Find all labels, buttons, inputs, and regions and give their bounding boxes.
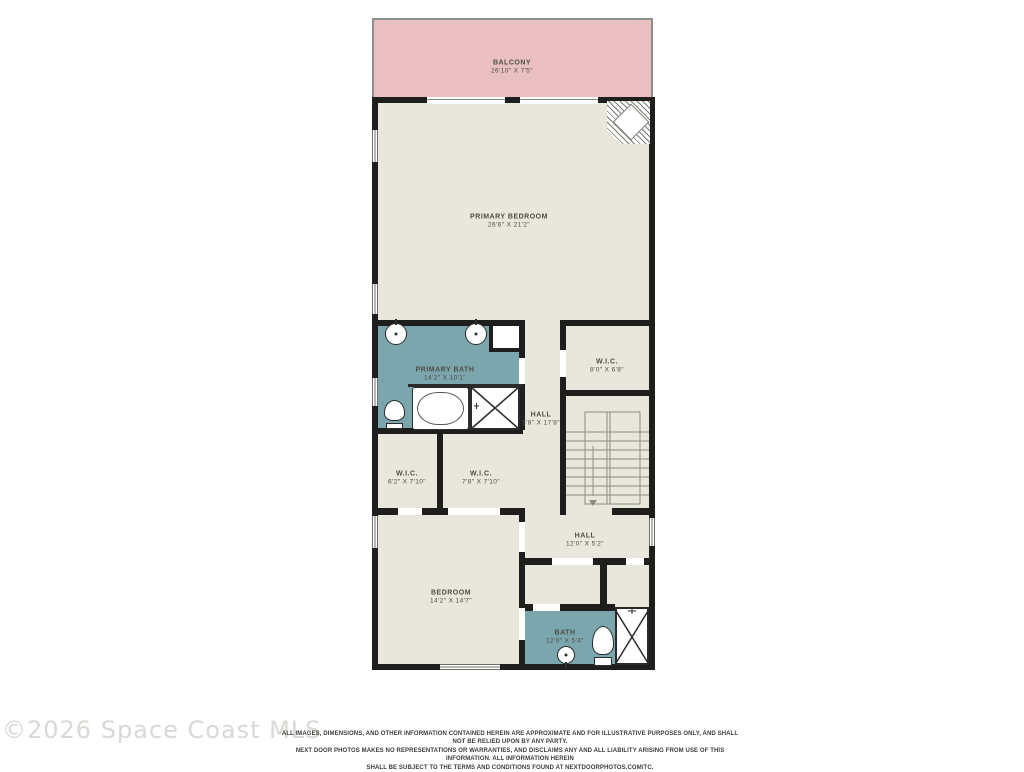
room-name: HALL bbox=[566, 533, 604, 540]
room-dimensions: 3'8" X 17'8" bbox=[522, 420, 560, 427]
disclaimer-line: NEXT DOOR PHOTOS MAKES NO REPRESENTATION… bbox=[280, 747, 740, 764]
toilet-tank bbox=[594, 657, 612, 666]
room-label-primary-bath: PRIMARY BATH 14'2" X 10'1" bbox=[416, 367, 475, 382]
toilet-tank bbox=[386, 423, 404, 429]
room-name: PRIMARY BEDROOM bbox=[470, 214, 548, 221]
wall bbox=[500, 508, 525, 515]
toilet-bowl bbox=[384, 400, 405, 421]
room-name: HALL bbox=[522, 412, 560, 419]
room-label-wic-small: W.I.C. 6'2" X 7'10" bbox=[388, 471, 426, 486]
wall bbox=[593, 558, 626, 565]
room-dimensions: 6'2" X 7'10" bbox=[388, 479, 426, 486]
window-marker bbox=[372, 284, 378, 314]
room-dimensions: 8'0" X 6'8" bbox=[590, 367, 624, 374]
wall bbox=[519, 320, 525, 358]
toilet-icon bbox=[384, 400, 405, 429]
window-marker bbox=[372, 130, 378, 162]
room-label-hall-lower: HALL 12'0" X 5'2" bbox=[566, 533, 604, 548]
wall bbox=[560, 508, 566, 515]
toilet-bowl bbox=[592, 626, 614, 655]
sliding-door-opening bbox=[520, 97, 598, 104]
room-dimensions: 14'2" X 14'7" bbox=[430, 598, 472, 605]
wall bbox=[525, 558, 552, 565]
room-label-wic-mid: W.I.C. 7'8" X 7'10" bbox=[462, 471, 500, 486]
door-opening bbox=[519, 608, 525, 640]
window-marker bbox=[649, 518, 655, 546]
door-opening bbox=[398, 508, 422, 515]
window-marker bbox=[440, 664, 500, 670]
wall bbox=[372, 508, 398, 515]
mls-watermark: ©2026 Space Coast MLS bbox=[2, 716, 321, 744]
sink-icon bbox=[465, 323, 487, 345]
room-dimensions: 12'0" X 5'4" bbox=[546, 638, 584, 645]
room-name: W.I.C. bbox=[462, 471, 500, 478]
floor-plan-page: { "colors": { "wall": "#1e1e1c", "floor"… bbox=[0, 0, 1024, 768]
fireplace-diamond bbox=[613, 104, 650, 141]
wall bbox=[565, 320, 655, 326]
wall bbox=[519, 515, 525, 522]
room-name: W.I.C. bbox=[388, 471, 426, 478]
door-opening bbox=[519, 358, 525, 384]
room-dimensions: 26'6" X 21'2" bbox=[470, 222, 548, 229]
door-opening bbox=[533, 604, 560, 611]
wall bbox=[437, 434, 443, 510]
room-name: W.I.C. bbox=[590, 359, 624, 366]
window-marker bbox=[372, 516, 378, 548]
room-dimensions: 26'10" X 7'5" bbox=[491, 68, 533, 75]
wall bbox=[489, 348, 519, 352]
door-opening bbox=[552, 558, 593, 565]
room-label-wic-right: W.I.C. 8'0" X 6'8" bbox=[590, 359, 624, 374]
door-opening bbox=[519, 522, 525, 552]
door-opening bbox=[560, 350, 566, 377]
shower-icon bbox=[470, 386, 520, 430]
sliding-door-opening bbox=[427, 97, 505, 104]
sink-icon bbox=[385, 323, 407, 345]
room-label-bath: BATH 12'0" X 5'4" bbox=[546, 630, 584, 645]
door-opening bbox=[626, 558, 644, 565]
wall bbox=[560, 604, 615, 611]
wall bbox=[422, 508, 448, 515]
window-marker bbox=[372, 378, 378, 406]
stairs-icon bbox=[566, 396, 649, 508]
room-dimensions: 7'8" X 7'10" bbox=[462, 479, 500, 486]
room-name: BATH bbox=[546, 630, 584, 637]
door-opening bbox=[448, 508, 500, 515]
room-label-bedroom: BEDROOM 14'2" X 14'7" bbox=[430, 590, 472, 605]
bathtub-icon bbox=[412, 387, 469, 430]
room-label-hall-upper: HALL 3'8" X 17'8" bbox=[522, 412, 560, 427]
wall bbox=[644, 558, 655, 565]
disclaimer-text: ALL IMAGES, DIMENSIONS, AND OTHER INFORM… bbox=[280, 730, 740, 772]
room-dimensions: 14'2" X 10'1" bbox=[416, 375, 475, 382]
floor-plan: BALCONY 26'10" X 7'5" PRIMARY BEDROOM 26… bbox=[0, 0, 1024, 768]
bath-closet-floor bbox=[492, 325, 519, 350]
room-name: BALCONY bbox=[491, 60, 533, 67]
sink-icon bbox=[557, 646, 575, 664]
room-name: PRIMARY BATH bbox=[416, 367, 475, 374]
wall bbox=[560, 320, 566, 350]
room-dimensions: 12'0" X 5'2" bbox=[566, 541, 604, 548]
room-label-balcony: BALCONY 26'10" X 7'5" bbox=[491, 60, 533, 75]
wall bbox=[519, 640, 525, 670]
shower-icon bbox=[615, 607, 649, 665]
disclaimer-line: ALL IMAGES, DIMENSIONS, AND OTHER INFORM… bbox=[280, 730, 740, 747]
wall bbox=[612, 508, 655, 515]
room-name: BEDROOM bbox=[430, 590, 472, 597]
room-label-primary-bedroom: PRIMARY BEDROOM 26'6" X 21'2" bbox=[470, 214, 548, 229]
toilet-icon bbox=[592, 626, 614, 666]
